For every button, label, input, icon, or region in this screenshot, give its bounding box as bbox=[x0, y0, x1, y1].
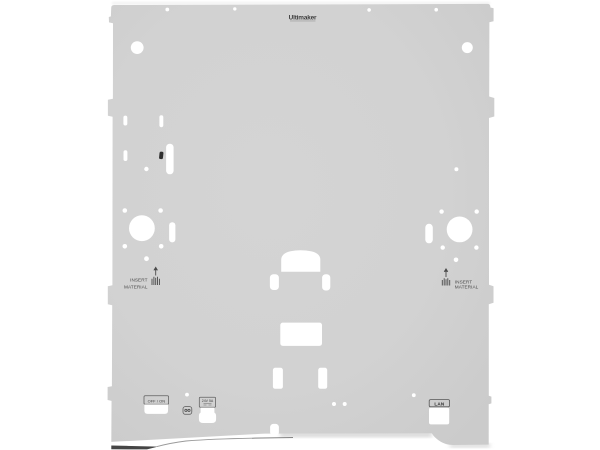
svg-text:MATERIAL: MATERIAL bbox=[455, 285, 479, 290]
svg-text:OFF / ON: OFF / ON bbox=[148, 398, 166, 403]
svg-text:MATERIAL: MATERIAL bbox=[124, 285, 148, 290]
svg-text:INSERT: INSERT bbox=[455, 279, 472, 284]
svg-text:INSERT: INSERT bbox=[130, 278, 147, 283]
svg-text:24V 5A: 24V 5A bbox=[202, 399, 214, 403]
svg-text:LAN: LAN bbox=[434, 401, 445, 406]
